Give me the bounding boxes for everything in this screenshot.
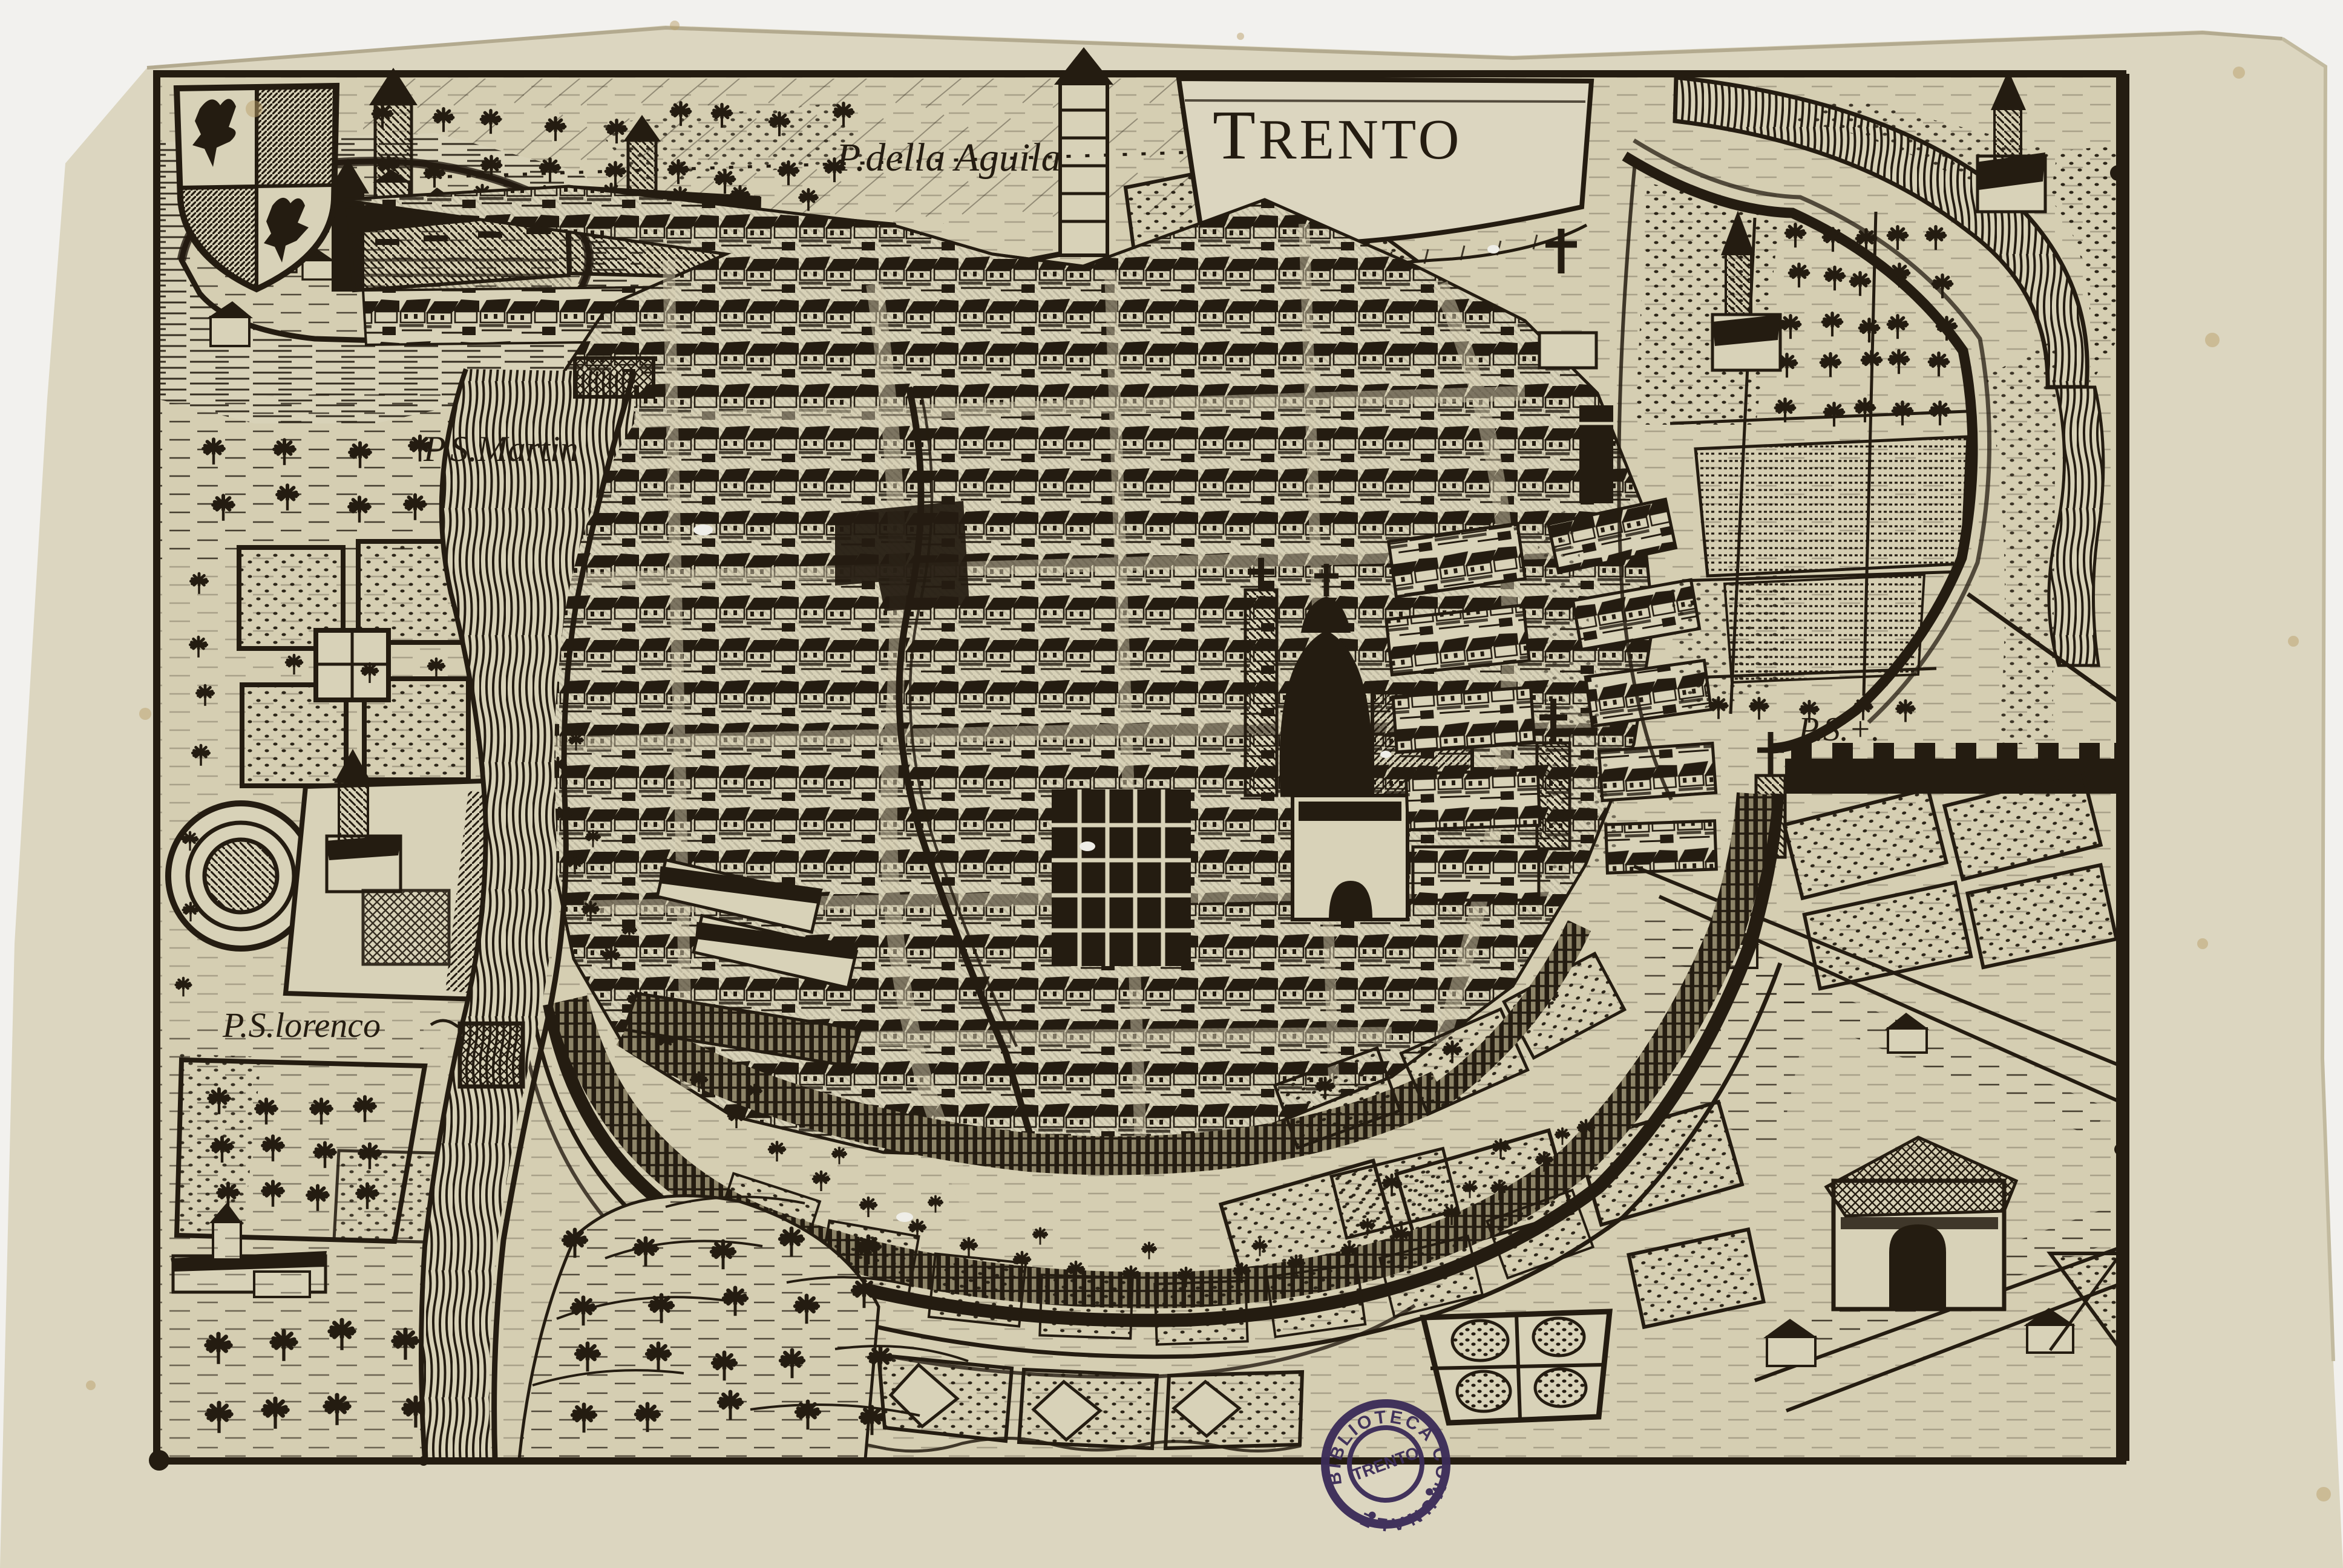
svg-text:P.della Aguila: P.della Aguila: [836, 136, 1061, 180]
svg-text:P.S.+.: P.S.+.: [1798, 711, 1880, 748]
svg-text:TRENTO: TRENTO: [1213, 97, 1462, 174]
svg-text:P.S.Martin: P.S.Martin: [423, 429, 578, 469]
